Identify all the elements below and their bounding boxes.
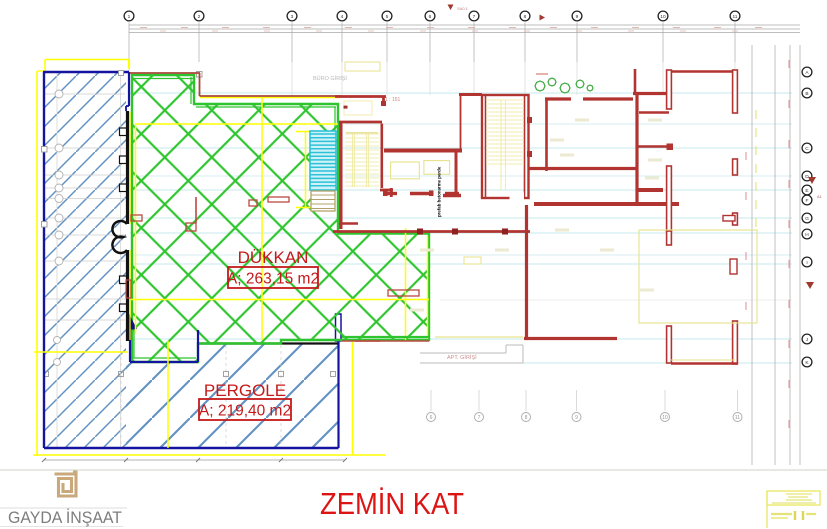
svg-text:prefab betonarme perde: prefab betonarme perde — [437, 166, 442, 217]
svg-text:7: 7 — [473, 14, 476, 20]
svg-text:1: 1 — [128, 14, 131, 20]
svg-text:1 : 151: 1 : 151 — [385, 97, 401, 103]
svg-text:D: D — [805, 174, 809, 180]
svg-text:6: 6 — [429, 14, 432, 20]
svg-text:ZEMİN KAT: ZEMİN KAT — [320, 486, 464, 521]
svg-text:F: F — [806, 198, 809, 204]
svg-text:APT. GİRİŞİ: APT. GİRİŞİ — [447, 354, 477, 361]
svg-text:4: 4 — [341, 14, 344, 20]
svg-text:BÜRO GİRİŞİ: BÜRO GİRİŞİ — [313, 75, 347, 82]
svg-text:2: 2 — [198, 14, 201, 20]
svg-text:3: 3 — [291, 14, 294, 20]
svg-text:A1: A1 — [817, 194, 823, 199]
svg-text:11: 11 — [735, 415, 740, 421]
svg-text:E: E — [805, 188, 808, 194]
svg-text:10: 10 — [662, 415, 668, 421]
svg-text:6: 6 — [430, 415, 433, 421]
svg-text:8: 8 — [524, 14, 527, 20]
svg-text:I: I — [806, 260, 807, 266]
svg-text:PERGOLE: PERGOLE — [204, 381, 286, 400]
svg-text:9: 9 — [575, 415, 578, 421]
svg-text:C: C — [805, 146, 809, 152]
svg-text:SA0.1: SA0.1 — [457, 6, 469, 11]
svg-text:A; 219,40 m2: A; 219,40 m2 — [199, 403, 291, 420]
svg-text:B: B — [805, 91, 808, 97]
svg-text:GAYDA İNŞAAT: GAYDA İNŞAAT — [8, 508, 122, 527]
svg-text:DÜKKAN: DÜKKAN — [238, 248, 309, 267]
svg-text:5: 5 — [386, 14, 389, 20]
svg-text:H: H — [805, 232, 809, 238]
svg-text:11: 11 — [733, 14, 738, 20]
svg-text:A; 263,15 m2: A; 263,15 m2 — [227, 271, 319, 288]
svg-text:8: 8 — [525, 415, 528, 421]
svg-text:9: 9 — [576, 14, 579, 20]
svg-text:7: 7 — [478, 415, 481, 421]
svg-text:G: G — [805, 216, 809, 222]
svg-text:10: 10 — [660, 14, 666, 20]
